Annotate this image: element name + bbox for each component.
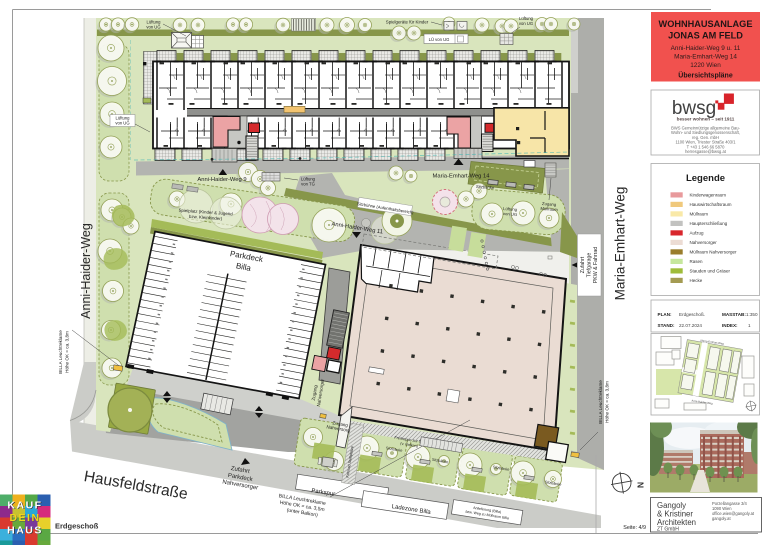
svg-text:Maria-Emhart-Weg 14: Maria-Emhart-Weg 14 xyxy=(674,54,737,61)
svg-text:gangoly.at: gangoly.at xyxy=(712,516,731,521)
svg-text:Tiefgarage: Tiefgarage xyxy=(587,253,593,278)
svg-text:Nahversorger: Nahversorger xyxy=(690,240,718,245)
svg-text:22.07.2024: 22.07.2024 xyxy=(679,323,702,328)
svg-text:herresgasse@bwsg.at: herresgasse@bwsg.at xyxy=(685,149,727,154)
svg-text:von TG: von TG xyxy=(301,182,315,187)
svg-text:JONAS AM FELD: JONAS AM FELD xyxy=(668,31,743,41)
svg-text:Stauden und Gräser: Stauden und Gräser xyxy=(690,269,731,274)
svg-text:Anni-Haider-Weg 9 u. 11: Anni-Haider-Weg 9 u. 11 xyxy=(671,45,741,52)
svg-text:MASSTAB:: MASSTAB: xyxy=(722,312,746,317)
svg-text:ZT GmbH: ZT GmbH xyxy=(657,527,679,533)
svg-text:1:350: 1:350 xyxy=(746,312,758,317)
svg-text:von UG: von UG xyxy=(519,21,533,26)
svg-text:Aufzug: Aufzug xyxy=(690,231,705,236)
svg-text:1220 Wien: 1220 Wien xyxy=(690,62,721,69)
svg-text:Erdgeschoß.: Erdgeschoß. xyxy=(679,312,705,317)
svg-text:Spielgeräte für Kinder: Spielgeräte für Kinder xyxy=(386,20,429,25)
svg-text:Erdgeschoß: Erdgeschoß xyxy=(55,522,99,531)
svg-text:von UG: von UG xyxy=(503,211,518,217)
svg-text:Anni-Haider-Weg 9: Anni-Haider-Weg 9 xyxy=(197,177,246,183)
svg-text:HAUS: HAUS xyxy=(7,525,43,537)
svg-text:Hecke: Hecke xyxy=(690,278,703,283)
svg-text:BILLA Leuchtreklame: BILLA Leuchtreklame xyxy=(598,380,603,424)
svg-text:PLAN:: PLAN: xyxy=(658,312,673,317)
svg-text:Müllraum Nahversorger: Müllraum Nahversorger xyxy=(690,250,738,255)
svg-text:LÜ von UG: LÜ von UG xyxy=(429,37,450,42)
svg-text:Haupterschließung: Haupterschließung xyxy=(690,221,728,226)
svg-text:INDEX:: INDEX: xyxy=(722,323,738,328)
svg-text:von UG: von UG xyxy=(115,121,129,126)
svg-text:Seite: 4/9: Seite: 4/9 xyxy=(623,525,646,531)
svg-text:Höhe OK = ca. 3,8m: Höhe OK = ca. 3,8m xyxy=(65,331,70,373)
svg-text:von UG: von UG xyxy=(146,25,160,30)
svg-text:besser wohnen – seit 1911: besser wohnen – seit 1911 xyxy=(677,116,735,121)
svg-text:Legende: Legende xyxy=(686,173,725,184)
svg-text:Zufahrt: Zufahrt xyxy=(580,256,586,273)
svg-text:PKW & Fahrrad: PKW & Fahrrad xyxy=(593,247,599,283)
svg-text:Übersichtspläne: Übersichtspläne xyxy=(678,71,733,80)
svg-text:N: N xyxy=(636,482,646,488)
svg-text:WOHNHAUSANLAGE: WOHNHAUSANLAGE xyxy=(659,19,753,29)
svg-text:Rasen: Rasen xyxy=(690,259,704,264)
svg-text:BILLA Leuchtreklame: BILLA Leuchtreklame xyxy=(58,330,63,374)
svg-text:1: 1 xyxy=(748,323,751,328)
svg-text:Anni-Haider-Weg: Anni-Haider-Weg xyxy=(79,223,93,319)
svg-text:Müllraum: Müllraum xyxy=(690,212,709,217)
svg-text:KAUF: KAUF xyxy=(7,500,42,512)
svg-text:Maria-Emhart-Weg 14: Maria-Emhart-Weg 14 xyxy=(433,174,491,180)
svg-text:Maria-Emhart-Weg: Maria-Emhart-Weg xyxy=(613,187,628,301)
svg-text:Hauswirtschaftsraum: Hauswirtschaftsraum xyxy=(690,202,732,207)
svg-text:DEIN: DEIN xyxy=(9,512,40,524)
svg-text:Kinderwagenraum: Kinderwagenraum xyxy=(690,193,727,198)
svg-text:STAND:: STAND: xyxy=(658,323,675,328)
svg-text:Höhe OK = ca. 3,8m: Höhe OK = ca. 3,8m xyxy=(605,381,610,423)
